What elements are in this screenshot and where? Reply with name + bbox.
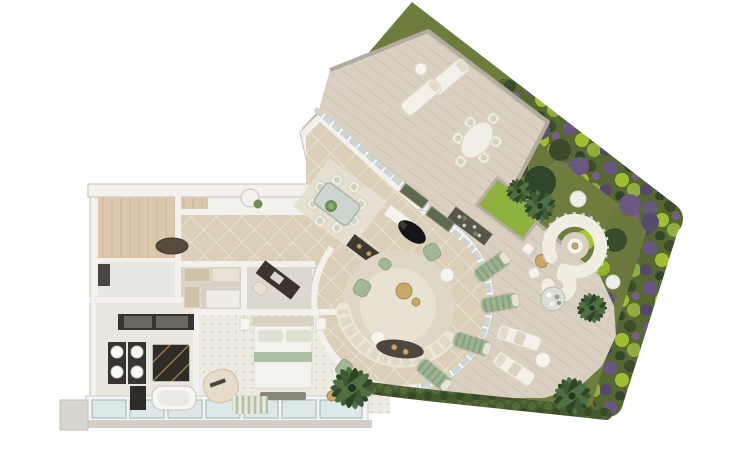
pillow	[258, 330, 283, 342]
floor-plan-render	[0, 0, 755, 450]
nightstand	[240, 318, 250, 330]
marble-shower	[152, 344, 190, 382]
bath-cabinet	[130, 386, 146, 410]
hall-plant	[254, 200, 263, 209]
sink	[111, 366, 123, 378]
pet-bed	[156, 238, 188, 254]
gold-coffee-table	[396, 283, 412, 299]
north-wall	[88, 184, 314, 197]
sink	[111, 346, 123, 358]
flower-ball-planter	[541, 287, 565, 311]
round-side-table	[440, 268, 454, 282]
bathtub-basin	[158, 390, 190, 406]
bed-throw	[254, 352, 312, 362]
flower	[550, 302, 555, 307]
round-rug-inner	[360, 268, 436, 344]
spa-table-center	[572, 243, 578, 249]
laundry-appliance	[98, 264, 110, 286]
sphere-lamp	[570, 191, 586, 207]
sphere-lamp	[606, 275, 620, 289]
flower	[547, 293, 552, 298]
lounger-side-table	[536, 353, 551, 368]
pillow	[286, 330, 311, 342]
gold-coffee-table-small	[412, 298, 420, 306]
headboard	[252, 316, 314, 326]
flower	[557, 301, 561, 305]
window-ledge	[80, 420, 372, 428]
sink	[131, 366, 143, 378]
deck-side-table	[415, 63, 427, 75]
mirror	[156, 316, 188, 328]
plant-centerpiece-top	[328, 203, 334, 209]
balcony-step	[60, 400, 88, 430]
mirror	[124, 316, 152, 328]
hallway-floor	[180, 214, 312, 266]
closet-island	[206, 290, 240, 308]
nightstand	[316, 318, 326, 330]
floor-plan-canvas	[0, 0, 755, 450]
flower	[555, 295, 560, 300]
sink	[131, 346, 143, 358]
striped-rug	[232, 396, 268, 414]
